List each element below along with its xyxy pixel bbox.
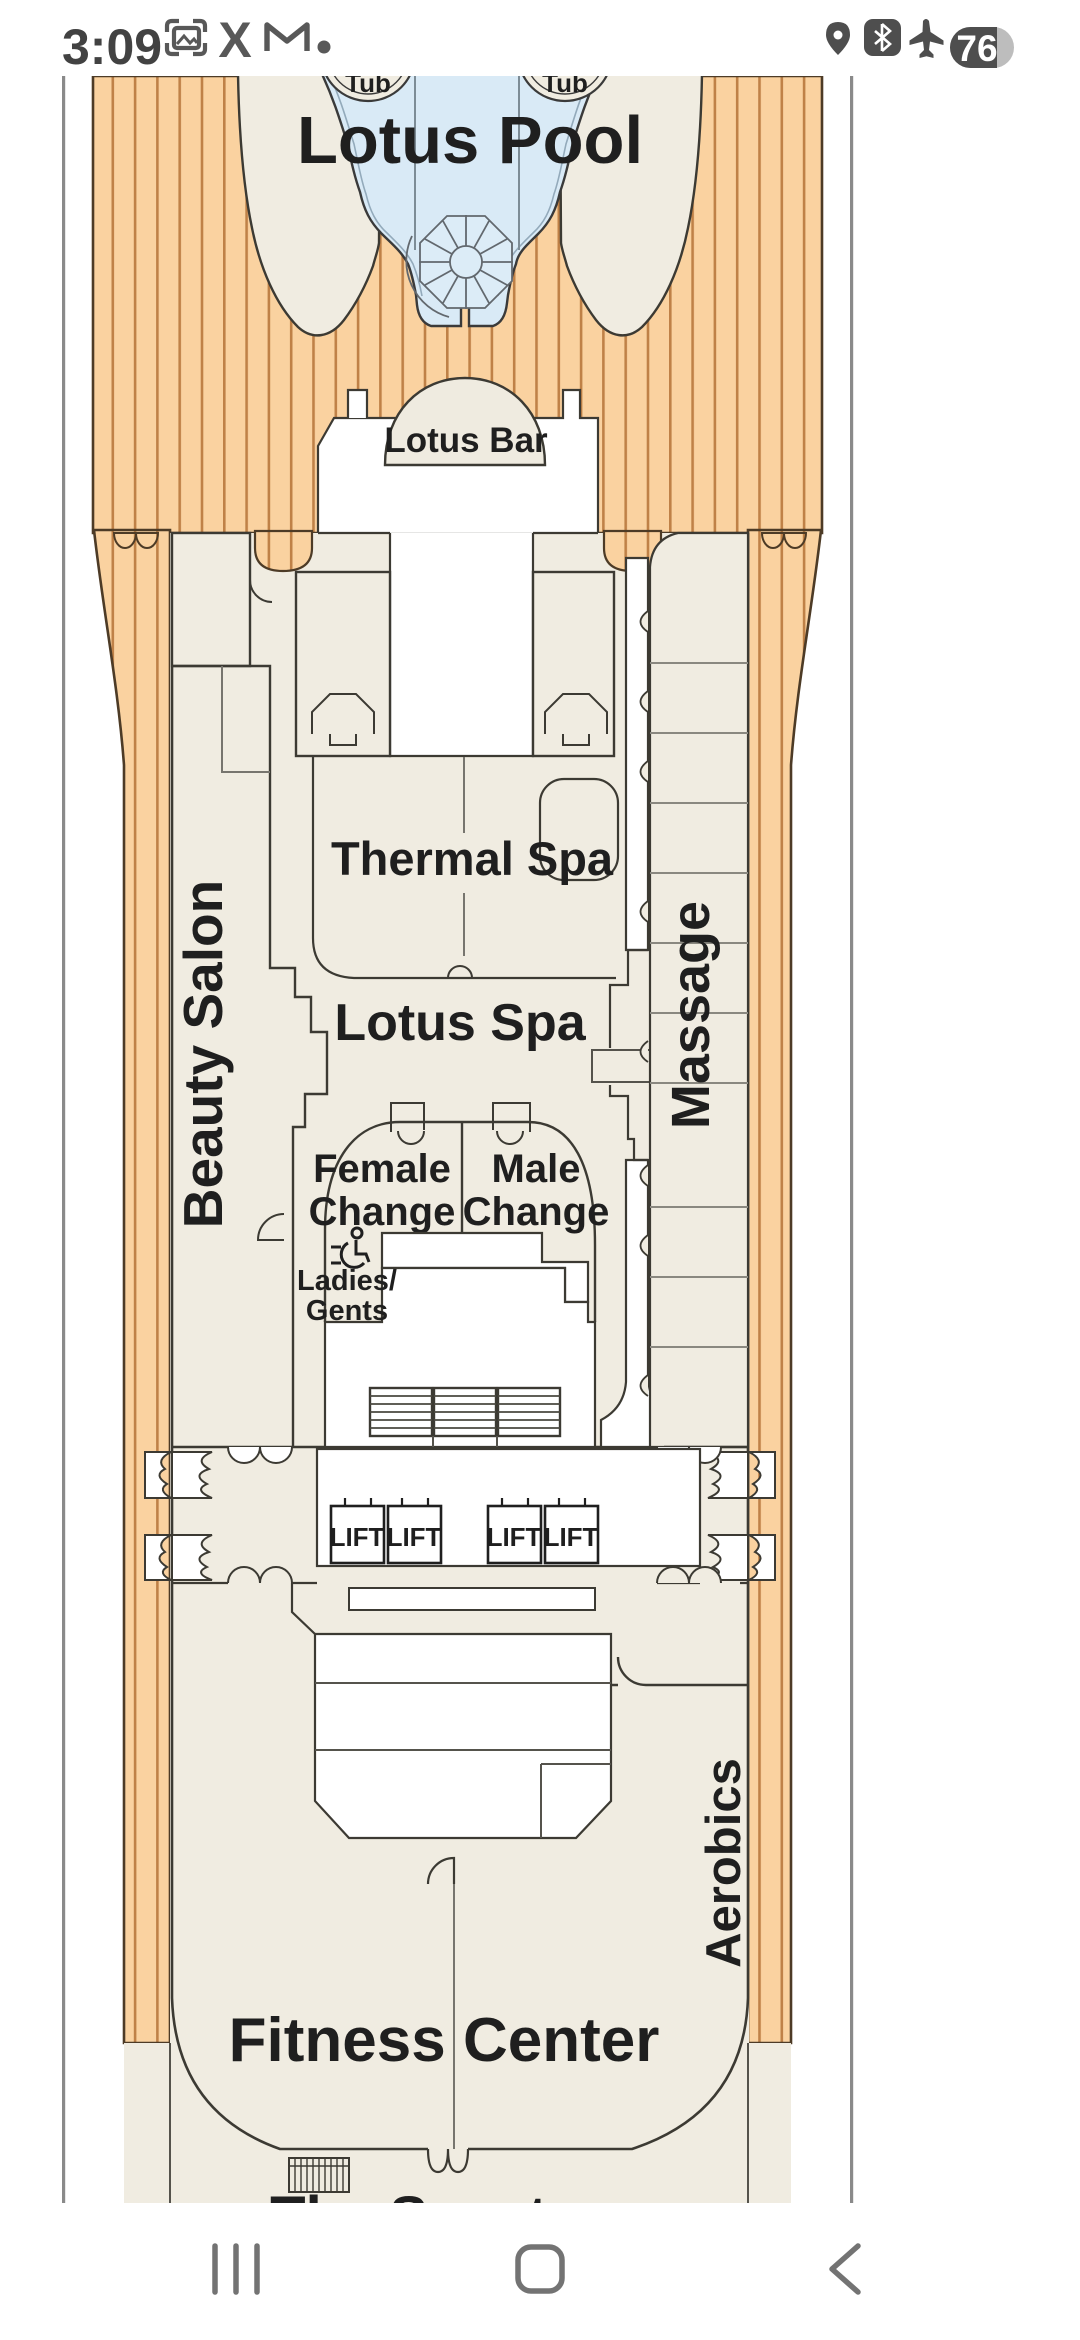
- svg-text:X: X: [218, 12, 251, 68]
- svg-text:LIFT: LIFT: [544, 1522, 599, 1552]
- svg-text:LIFT: LIFT: [487, 1522, 542, 1552]
- svg-text:Thermal Spa: Thermal Spa: [331, 832, 614, 885]
- svg-text:Lotus Bar: Lotus Bar: [384, 421, 548, 460]
- svg-text:Female: Female: [313, 1147, 451, 1191]
- svg-text:Massage: Massage: [661, 901, 721, 1129]
- svg-text:LIFT: LIFT: [387, 1522, 442, 1552]
- svg-text:Fitness Center: Fitness Center: [229, 2006, 660, 2075]
- svg-text:Change: Change: [309, 1190, 456, 1234]
- svg-text:Change: Change: [463, 1190, 610, 1234]
- svg-text:Aerobics: Aerobics: [697, 1758, 751, 1968]
- svg-text:3:09: 3:09: [62, 19, 162, 75]
- svg-text:Male: Male: [492, 1147, 581, 1191]
- svg-text:LIFT: LIFT: [330, 1522, 385, 1552]
- svg-text:Ladies/: Ladies/: [297, 1265, 397, 1297]
- svg-text:Gents: Gents: [306, 1295, 388, 1327]
- svg-text:Beauty Salon: Beauty Salon: [172, 880, 234, 1228]
- svg-text:76: 76: [956, 28, 997, 69]
- svg-text:Lotus Pool: Lotus Pool: [297, 103, 643, 178]
- svg-text:Lotus Spa: Lotus Spa: [334, 994, 586, 1052]
